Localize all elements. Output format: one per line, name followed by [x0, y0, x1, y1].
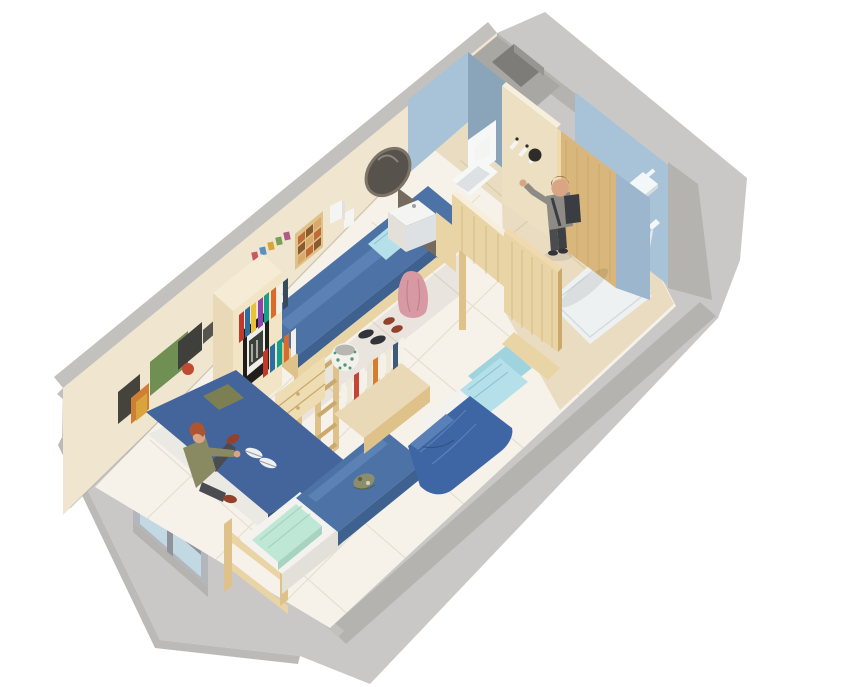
hook-dot: [525, 144, 528, 147]
bed2-post-left: [224, 518, 232, 592]
poster-red-dot: [182, 363, 194, 375]
person2-head: [551, 179, 568, 196]
person2-shoe: [558, 248, 568, 253]
dorm-floorplan-rendering: [0, 0, 859, 687]
person2-backpack: [564, 194, 581, 224]
faucet: [412, 204, 416, 208]
person-hand: [234, 451, 241, 458]
sliding-door-edge: [558, 268, 562, 352]
switch-shadow: [342, 200, 345, 220]
black-cap: [529, 149, 542, 162]
person2-shoe: [548, 250, 558, 255]
laundry-basket: [331, 343, 359, 371]
person2-hand: [519, 179, 526, 186]
hook-dot: [515, 137, 518, 140]
isometric-scene: [0, 0, 859, 687]
